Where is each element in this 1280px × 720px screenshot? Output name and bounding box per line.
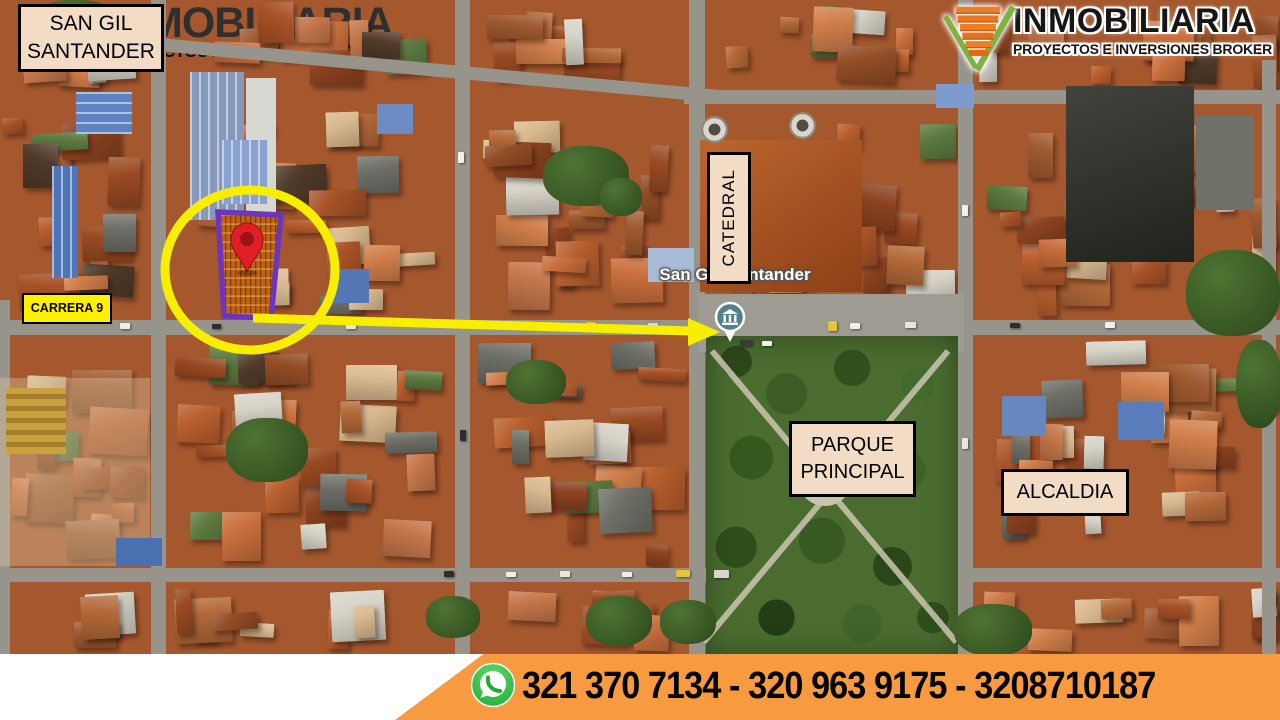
building-roof [175,588,193,633]
building-roof [407,454,436,492]
title-badge: SAN GIL SANTANDER [18,4,164,72]
building-roof [382,519,432,558]
building-roof [265,477,299,513]
car [506,572,516,577]
building-roof [345,479,372,504]
building-roof [544,419,594,458]
car [962,205,968,216]
building-roof [286,219,326,233]
main-park-label: PARQUE PRINCIPAL [789,421,916,497]
car [120,323,130,329]
street-label-carrera9: CARRERA 9 [22,293,112,324]
v-check-building-logo-icon [939,2,1017,74]
trees [660,600,716,644]
car [828,321,837,331]
street-label-text: CARRERA 9 [31,300,103,317]
header-brand-tagline: PROYECTOS E INVERSIONES BROKER [1013,41,1272,57]
building-roof [986,185,1027,212]
trees [506,360,566,404]
building-roof [404,370,442,391]
building-roof [385,431,437,454]
building-roof [836,45,897,84]
building-roof [487,15,543,40]
building-roof [212,612,259,631]
building-roof [1132,259,1166,284]
dark-building [1066,86,1194,262]
building-roof [598,487,653,534]
building-roof [353,605,375,639]
car [532,322,542,328]
building-roof [1000,211,1022,227]
car [558,323,567,328]
building-roof [1158,599,1190,619]
whatsapp-icon [470,662,516,708]
blue-roof [116,538,162,566]
building-roof [295,17,330,43]
building-roof [496,215,548,246]
building-roof [779,17,798,34]
building-roof [258,1,295,44]
building-roof [1084,436,1105,469]
park-label-line2: PRINCIPAL [800,459,904,486]
blue-roof [1118,402,1164,440]
building-roof [221,512,260,561]
car [762,341,772,346]
building-roof [175,357,227,378]
trees [954,604,1032,656]
trees [600,178,642,216]
building-roof [1185,492,1227,522]
cathedral-label: CATEDRAL [707,152,751,284]
title-badge-line2: SANTANDER [27,38,155,66]
blue-roof [377,104,413,134]
building-roof [646,545,668,566]
blue-roof [1002,396,1046,436]
building-roof [107,157,140,207]
market-roofs [6,388,66,454]
street [956,568,1280,582]
car [560,571,570,577]
building-roof [265,353,309,385]
trees [226,418,308,482]
building-roof [80,595,121,640]
building-roof [300,523,326,549]
cathedral-label-text: CATEDRAL [718,169,741,266]
building-roof [524,476,552,513]
blue-roof [52,166,78,278]
car [850,323,860,329]
building-roof [1101,598,1133,620]
car [444,571,454,577]
car [1010,323,1020,328]
car [740,340,752,346]
car [212,324,221,329]
building-roof [726,46,749,69]
trees [426,596,480,638]
building-roof [362,32,400,59]
car [962,438,968,449]
car [648,323,658,328]
building-roof [1028,628,1073,652]
building-roof [309,190,367,217]
flyer-canvas: San Gil, Santander SAN GIL SANTANDER CAR… [0,0,1280,720]
street [0,568,710,582]
cathedral-dome [701,116,728,143]
building-roof [507,591,556,623]
building-roof [1042,379,1084,418]
building-roof [485,144,533,168]
car [622,572,632,577]
city-hall-label: ALCALDIA [1001,469,1129,516]
footer-phone-numbers: 321 370 7134 - 320 963 9175 - 3208710187 [522,665,1188,708]
title-badge-line1: SAN GIL [50,10,133,38]
building-roof [542,256,587,274]
building-roof [176,404,221,444]
trees [1236,340,1280,428]
building-roof [240,268,290,307]
building-roof [625,211,644,256]
blue-roof [76,92,132,134]
header-brand-name: INMOBILIARIA [1013,2,1272,40]
car [905,322,916,328]
blue-roof [222,140,268,204]
building-roof [1086,340,1147,366]
building-roof [2,118,24,135]
building-roof [919,124,955,160]
trees [1186,250,1280,336]
trees [586,596,652,646]
park-label-line1: PARQUE [811,432,894,459]
building-roof [512,430,530,464]
building-roof [357,156,400,193]
car [346,323,356,329]
building-roof [326,112,360,148]
car [460,430,466,441]
city-hall-label-text: ALCALDIA [1017,479,1114,506]
building-roof [649,144,669,192]
car [458,152,464,163]
car [586,322,596,328]
building-roof [564,19,584,66]
building-roof [1028,133,1053,178]
cathedral-dome [789,112,816,139]
building-roof [103,214,136,252]
building-roof [340,400,361,432]
street [0,320,1280,335]
building-roof [547,481,588,511]
building-roof [1168,419,1218,470]
building-roof [887,245,925,285]
car [1105,322,1115,328]
building-roof [637,367,686,383]
satellite-map [0,0,1280,720]
building-roof [346,365,397,400]
grey-building [1196,116,1254,210]
blue-roof [936,84,974,108]
blue-roof [329,269,369,303]
header-brand-logo: INMOBILIARIA PROYECTOS E INVERSIONES BRO… [939,2,1272,74]
car [714,570,729,578]
car [676,570,690,577]
